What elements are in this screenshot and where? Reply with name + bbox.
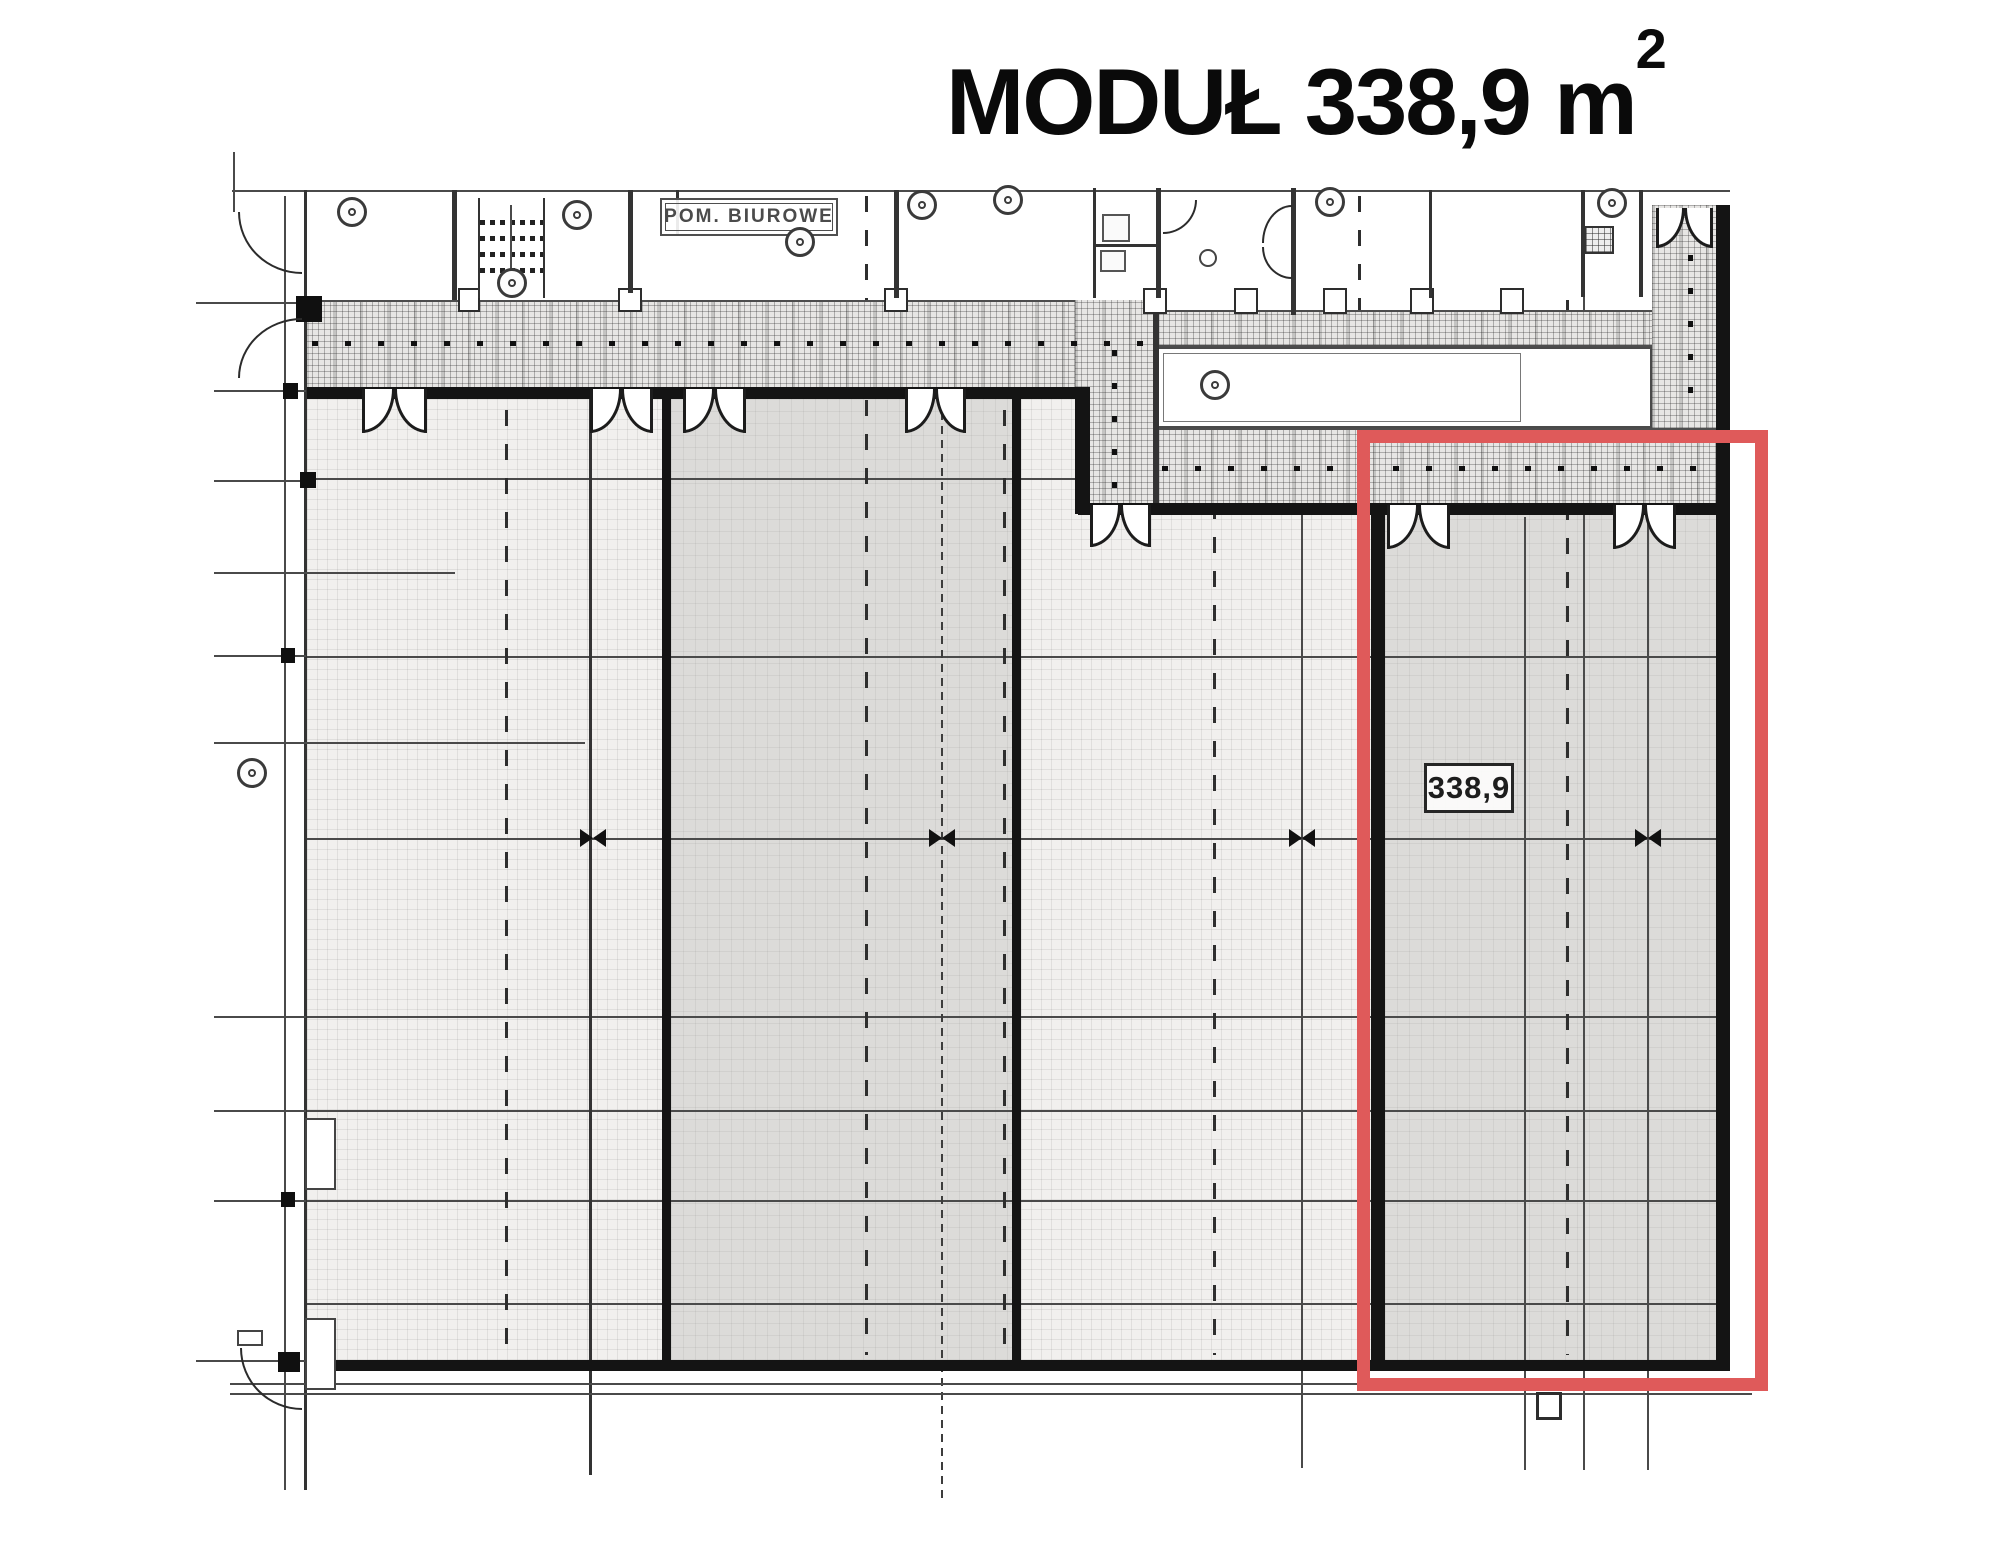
room-wall — [452, 190, 457, 300]
wall-tick — [214, 480, 306, 482]
stair-rail — [543, 198, 545, 298]
door-swing-arc-icon — [238, 212, 302, 274]
column-marker-icon — [337, 197, 367, 227]
expansion-joint-marker-icon — [580, 829, 606, 847]
door-swing-arc-icon — [1262, 205, 1292, 243]
marker-dot-icon — [918, 201, 926, 209]
module-highlight-rectangle — [1357, 430, 1768, 1391]
hall-module-2-floor — [671, 399, 1012, 1360]
wall-axis-dotted-row — [312, 341, 1150, 346]
office-room-label-box: POM. BIUROWE — [660, 198, 838, 236]
column-marker-icon — [1200, 370, 1230, 400]
marker-dot-icon — [1326, 198, 1334, 206]
axis-dashed-line — [505, 410, 508, 1355]
wall-axis-dotted-column — [1112, 350, 1117, 505]
bottom-boundary-line — [230, 1393, 1752, 1395]
bowtie-left-icon — [1289, 829, 1302, 847]
sink-icon — [1199, 249, 1217, 267]
toilet-fixture — [1100, 250, 1126, 272]
wall-junction-node — [281, 648, 295, 663]
marker-dot-icon — [1211, 381, 1219, 389]
room-wall — [628, 190, 633, 293]
wall-junction-node — [281, 1192, 295, 1207]
wall-tick — [214, 1110, 306, 1112]
stair-axis-line — [510, 205, 512, 271]
office-room-label: POM. BIUROWE — [665, 203, 833, 231]
bowtie-right-icon — [1302, 829, 1315, 847]
toilet-fixture — [1102, 214, 1130, 242]
wall-opening — [1234, 288, 1258, 314]
door-frame-stub — [237, 1330, 263, 1346]
wall-opening — [1143, 288, 1167, 314]
wall-opening — [458, 288, 480, 312]
expansion-joint-marker-icon — [929, 829, 955, 847]
marker-dot-icon — [573, 211, 581, 219]
room-wall — [894, 190, 899, 298]
hall-module-3-floor — [1021, 399, 1371, 1360]
bowtie-left-icon — [580, 829, 593, 847]
hatched-wall-band-upper — [306, 300, 1157, 396]
axis-dashed-line — [1003, 410, 1006, 1355]
column-marker-icon — [1315, 187, 1345, 217]
marker-dot-icon — [248, 769, 256, 777]
room-wall — [1093, 188, 1096, 298]
axis-dashed-line — [1213, 435, 1216, 1355]
column-marker-icon — [1597, 188, 1627, 218]
wall-tick — [196, 302, 306, 304]
shaft-symbol-icon — [1584, 226, 1614, 254]
expansion-joint-marker-icon — [1289, 829, 1315, 847]
door-swing-arc-icon — [1262, 247, 1292, 279]
door-swing-arc-icon — [1163, 200, 1197, 234]
floor-plan-drawing: POM. BIUROWE — [0, 0, 1999, 1545]
column-marker-icon — [562, 200, 592, 230]
room-wall — [1639, 190, 1643, 297]
room-wall — [1429, 190, 1432, 298]
marker-dot-icon — [348, 208, 356, 216]
left-wall-inner-line — [304, 190, 307, 1490]
wall-junction-node — [300, 472, 316, 488]
wall-tick — [214, 1016, 306, 1018]
toilet-room-wall — [1156, 188, 1161, 298]
stair-landing-marker-icon — [497, 268, 527, 298]
grid-vline — [1301, 398, 1303, 1468]
wall-niche — [305, 1318, 336, 1390]
wall-niche — [305, 1118, 336, 1190]
door-swing-arc-icon — [238, 318, 302, 378]
wall-opening — [1323, 288, 1347, 314]
bottom-door-symbol — [1536, 1392, 1562, 1420]
column-marker-icon — [907, 190, 937, 220]
stair-rail — [478, 198, 480, 298]
wall-axis-dotted-column — [1688, 255, 1693, 420]
toilet-room-wall — [1095, 244, 1159, 247]
column-marker-icon — [993, 185, 1023, 215]
column-marker-icon — [785, 227, 815, 257]
wall-opening — [1500, 288, 1524, 314]
marker-dot-icon — [508, 279, 516, 287]
wall-tick-long — [214, 742, 585, 744]
hatched-wall-strip-right — [1157, 310, 1652, 347]
left-wall-stub — [233, 152, 235, 212]
hall-module-1-floor — [307, 399, 662, 1360]
door-swing-arc-icon — [240, 1348, 302, 1410]
floor-plan-page: MODUŁ 338,9 m2 — [0, 0, 1999, 1545]
wall-junction-node — [283, 383, 298, 399]
wall-column-edge — [1153, 300, 1159, 513]
marker-dot-icon — [1004, 196, 1012, 204]
wall-tick-long — [214, 572, 455, 574]
bowtie-right-icon — [942, 829, 955, 847]
grid-vline — [589, 398, 592, 1475]
bowtie-left-icon — [929, 829, 942, 847]
module-divider-wall-2 — [1012, 396, 1021, 1360]
wall-step-vertical — [1075, 387, 1090, 514]
marker-dot-icon — [796, 238, 804, 246]
column-marker-icon — [237, 758, 267, 788]
marker-dot-icon — [1608, 199, 1616, 207]
bowtie-right-icon — [593, 829, 606, 847]
grid-vline-dotted — [941, 398, 943, 1500]
module-divider-wall-1 — [662, 396, 671, 1360]
